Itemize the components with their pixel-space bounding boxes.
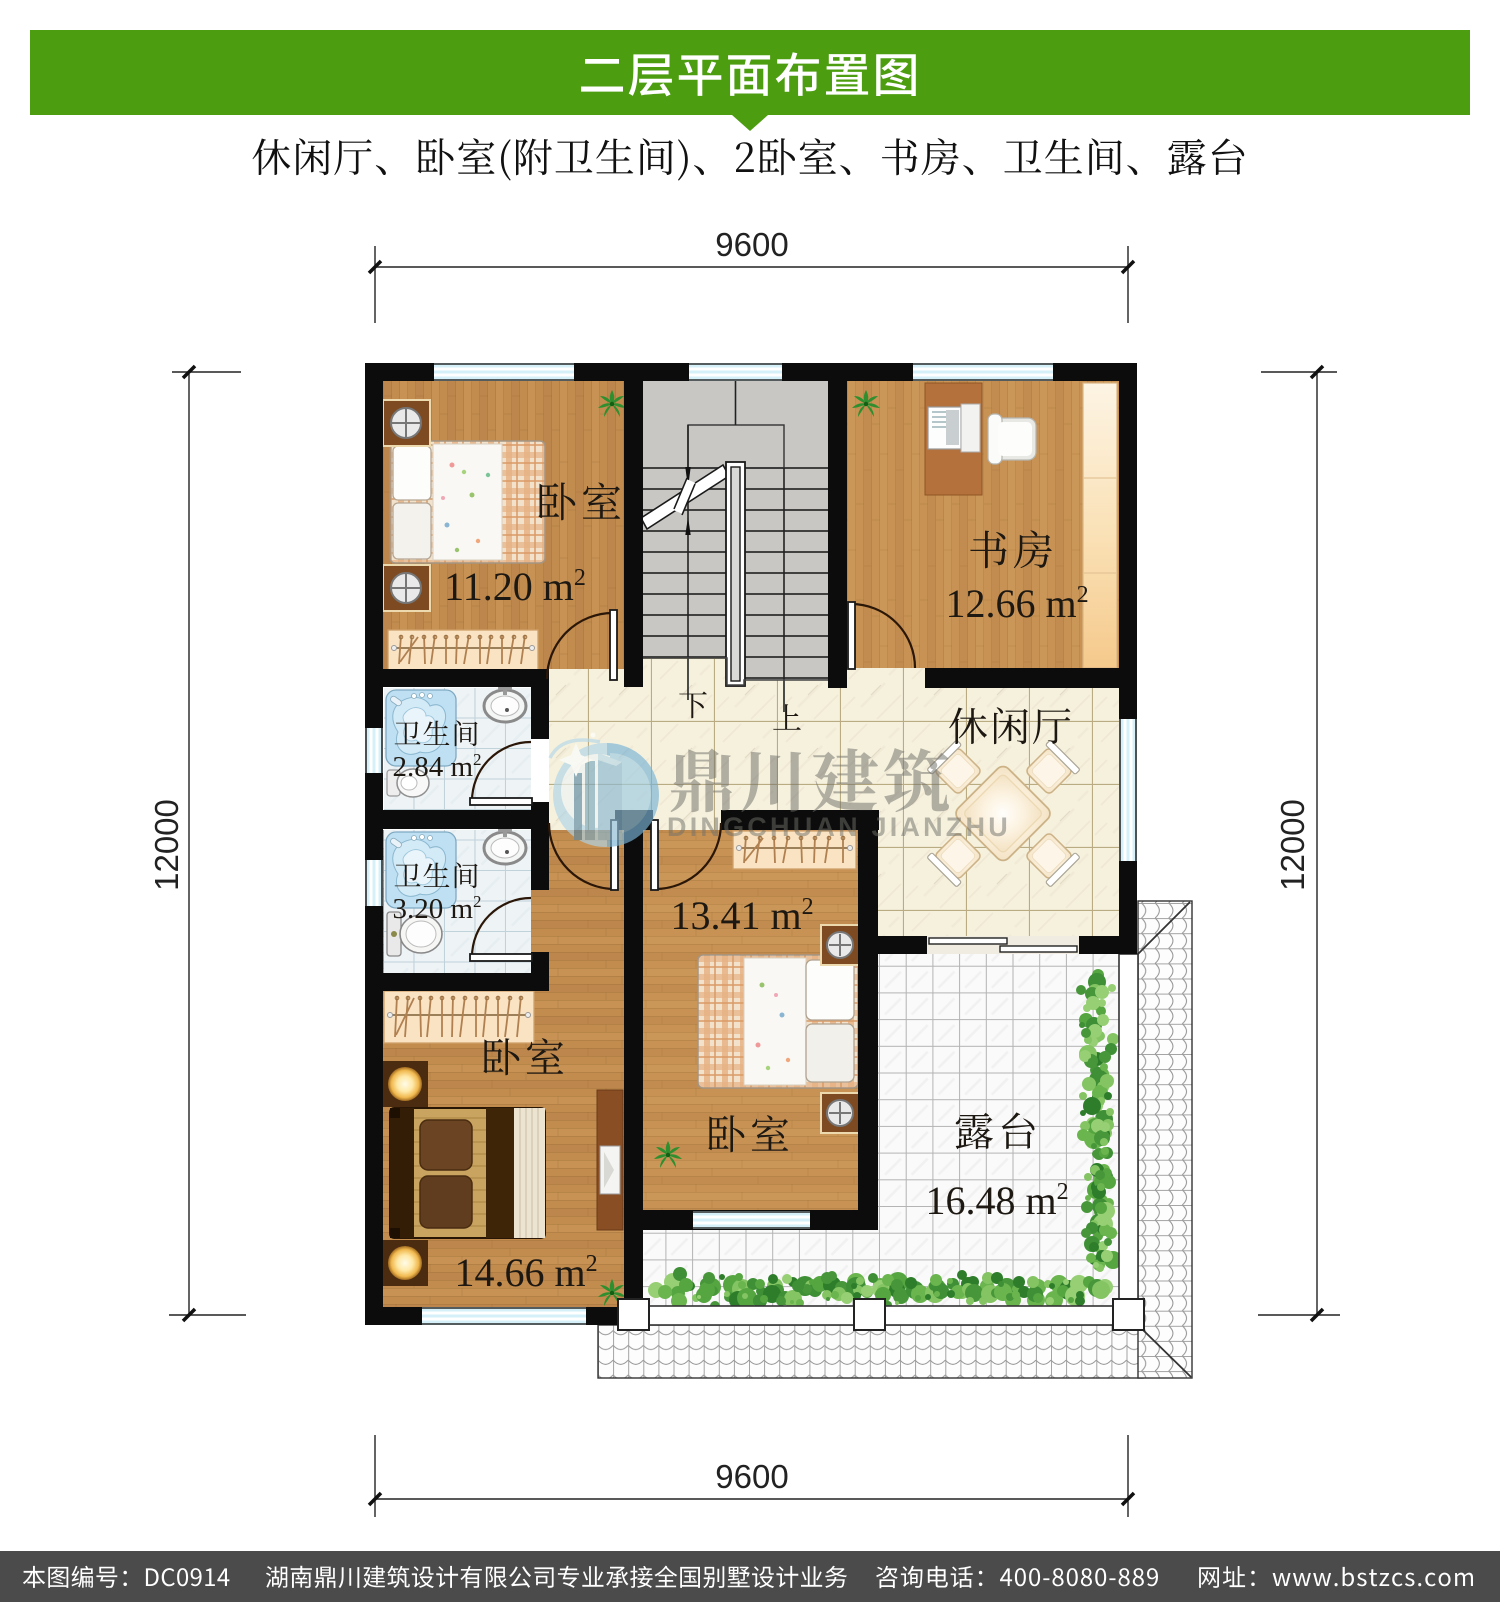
svg-text:14.66 m2: 14.66 m2 bbox=[454, 1250, 597, 1295]
svg-text:2.84 m2: 2.84 m2 bbox=[392, 750, 481, 783]
svg-text:13.41 m2: 13.41 m2 bbox=[670, 893, 813, 938]
svg-text:12000: 12000 bbox=[1274, 799, 1311, 891]
svg-text:9600: 9600 bbox=[715, 226, 788, 263]
svg-text:11.20 m2: 11.20 m2 bbox=[444, 564, 586, 609]
svg-text:3.20 m2: 3.20 m2 bbox=[392, 892, 481, 925]
svg-text:12000: 12000 bbox=[148, 799, 185, 891]
svg-text:DINGCHUAN JIANZHU: DINGCHUAN JIANZHU bbox=[667, 812, 1011, 842]
svg-text:9600: 9600 bbox=[715, 1458, 788, 1495]
svg-text:12.66 m2: 12.66 m2 bbox=[945, 581, 1088, 626]
svg-text:16.48 m2: 16.48 m2 bbox=[925, 1178, 1068, 1223]
